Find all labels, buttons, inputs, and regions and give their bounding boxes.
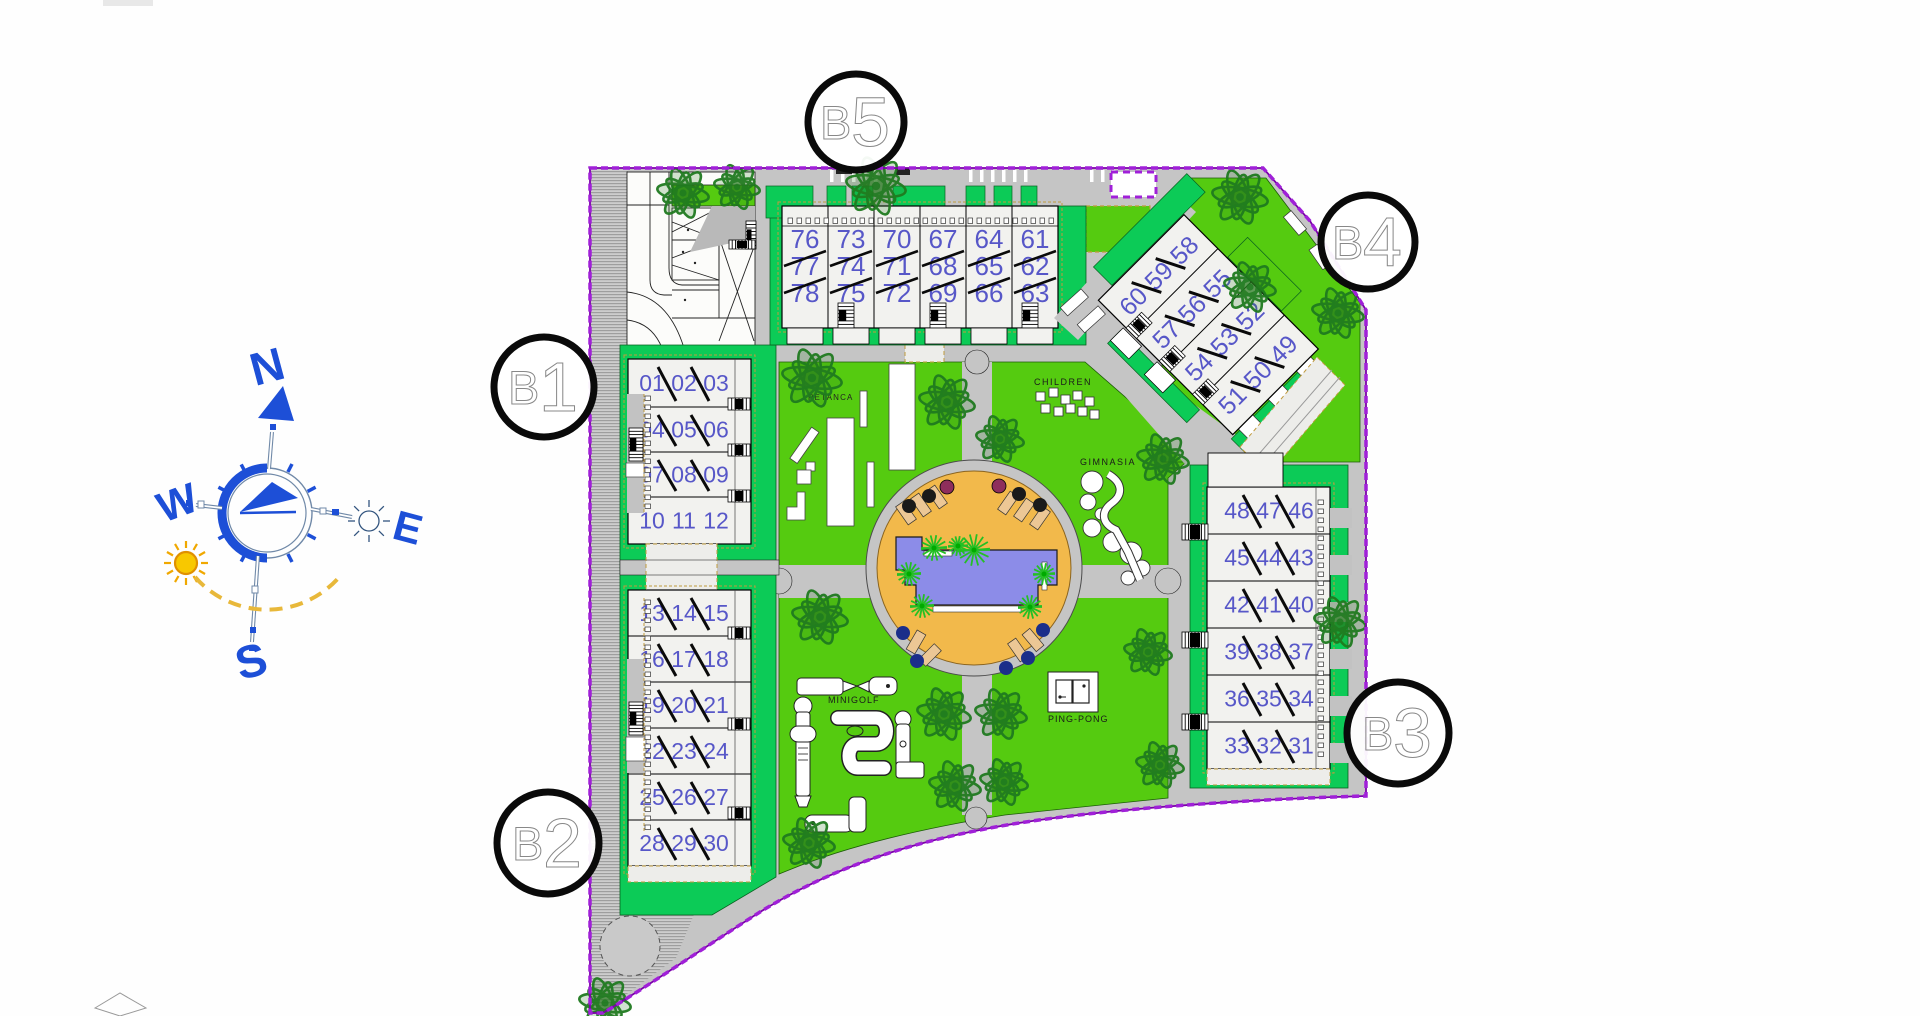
svg-text:61: 61	[1021, 224, 1050, 254]
svg-text:34: 34	[1288, 686, 1314, 712]
svg-text:06: 06	[703, 417, 729, 443]
svg-text:31: 31	[1288, 733, 1314, 759]
svg-text:73: 73	[837, 224, 866, 254]
svg-text:46: 46	[1288, 498, 1314, 524]
svg-text:B: B	[820, 96, 851, 149]
svg-text:12: 12	[703, 508, 729, 534]
svg-text:27: 27	[703, 784, 729, 810]
svg-text:03: 03	[703, 370, 729, 396]
svg-text:B: B	[1332, 216, 1363, 269]
svg-text:CHILDREN: CHILDREN	[1034, 377, 1092, 387]
svg-text:MINIGOLF: MINIGOLF	[828, 695, 880, 705]
svg-text:30: 30	[703, 830, 729, 856]
svg-text:64: 64	[975, 224, 1004, 254]
svg-text:B: B	[508, 361, 539, 414]
svg-text:37: 37	[1288, 639, 1314, 665]
svg-text:67: 67	[929, 224, 958, 254]
svg-text:2: 2	[543, 804, 582, 882]
svg-text:24: 24	[703, 738, 729, 764]
svg-text:B: B	[1362, 707, 1393, 760]
svg-text:11: 11	[672, 508, 696, 534]
svg-text:B: B	[512, 817, 543, 870]
svg-text:1: 1	[539, 348, 578, 426]
svg-text:15: 15	[703, 600, 729, 626]
svg-text:70: 70	[883, 224, 912, 254]
svg-text:18: 18	[703, 646, 729, 672]
svg-text:3: 3	[1393, 694, 1432, 772]
svg-text:21: 21	[703, 692, 729, 718]
svg-text:43: 43	[1288, 545, 1314, 571]
svg-text:09: 09	[703, 462, 729, 488]
svg-text:GIMNASIA: GIMNASIA	[1080, 457, 1136, 467]
svg-text:40: 40	[1288, 592, 1314, 618]
svg-text:5: 5	[851, 83, 890, 161]
svg-text:76: 76	[791, 224, 820, 254]
svg-text:PING-PONG: PING-PONG	[1048, 714, 1109, 724]
svg-text:4: 4	[1363, 203, 1402, 281]
